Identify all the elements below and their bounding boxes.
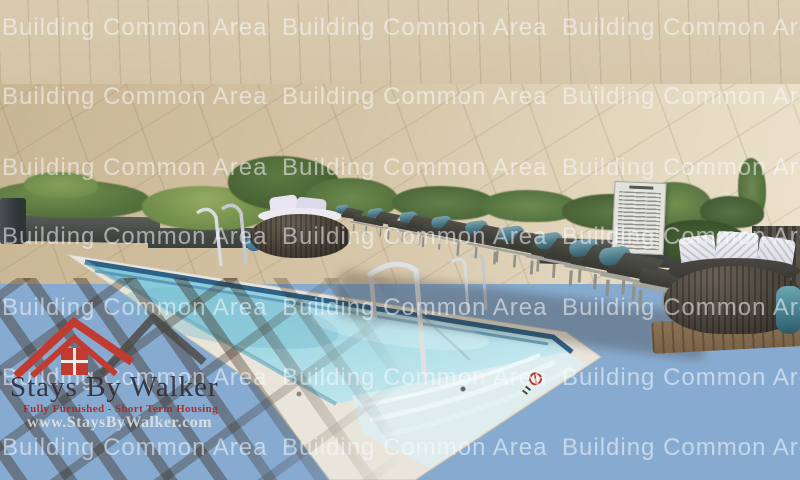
watermark-text: Building Common Area	[282, 293, 547, 323]
watermark-text: Building Common Area	[282, 433, 547, 463]
watermark-text: Building Common Area	[562, 153, 800, 183]
watermark-text: Building Common Area	[282, 82, 547, 112]
watermark-text: Building Common Area	[562, 222, 800, 252]
watermark-text: Building Common Area	[2, 363, 267, 393]
watermark-text: Building Common Area	[2, 433, 267, 463]
watermark-text: Building Common Area	[562, 293, 800, 323]
watermark-text: Building Common Area	[2, 293, 267, 323]
watermark-text: Building Common Area	[282, 222, 547, 252]
watermark-layer: Building Common AreaBuilding Common Area…	[0, 0, 800, 480]
watermark-text: Building Common Area	[282, 153, 547, 183]
watermark-text: Building Common Area	[562, 433, 800, 463]
watermark-text: Building Common Area	[2, 13, 267, 43]
watermark-text: Building Common Area	[282, 13, 547, 43]
watermark-text: Building Common Area	[2, 153, 267, 183]
rooftop-pool-photo: LIFEGUARD ON DUTY	[0, 0, 800, 480]
watermark-text: Building Common Area	[2, 222, 267, 252]
watermark-text: Building Common Area	[562, 13, 800, 43]
watermark-text: Building Common Area	[2, 82, 267, 112]
watermark-text: Building Common Area	[282, 363, 547, 393]
watermark-text: Building Common Area	[562, 82, 800, 112]
watermark-text: Building Common Area	[562, 363, 800, 393]
